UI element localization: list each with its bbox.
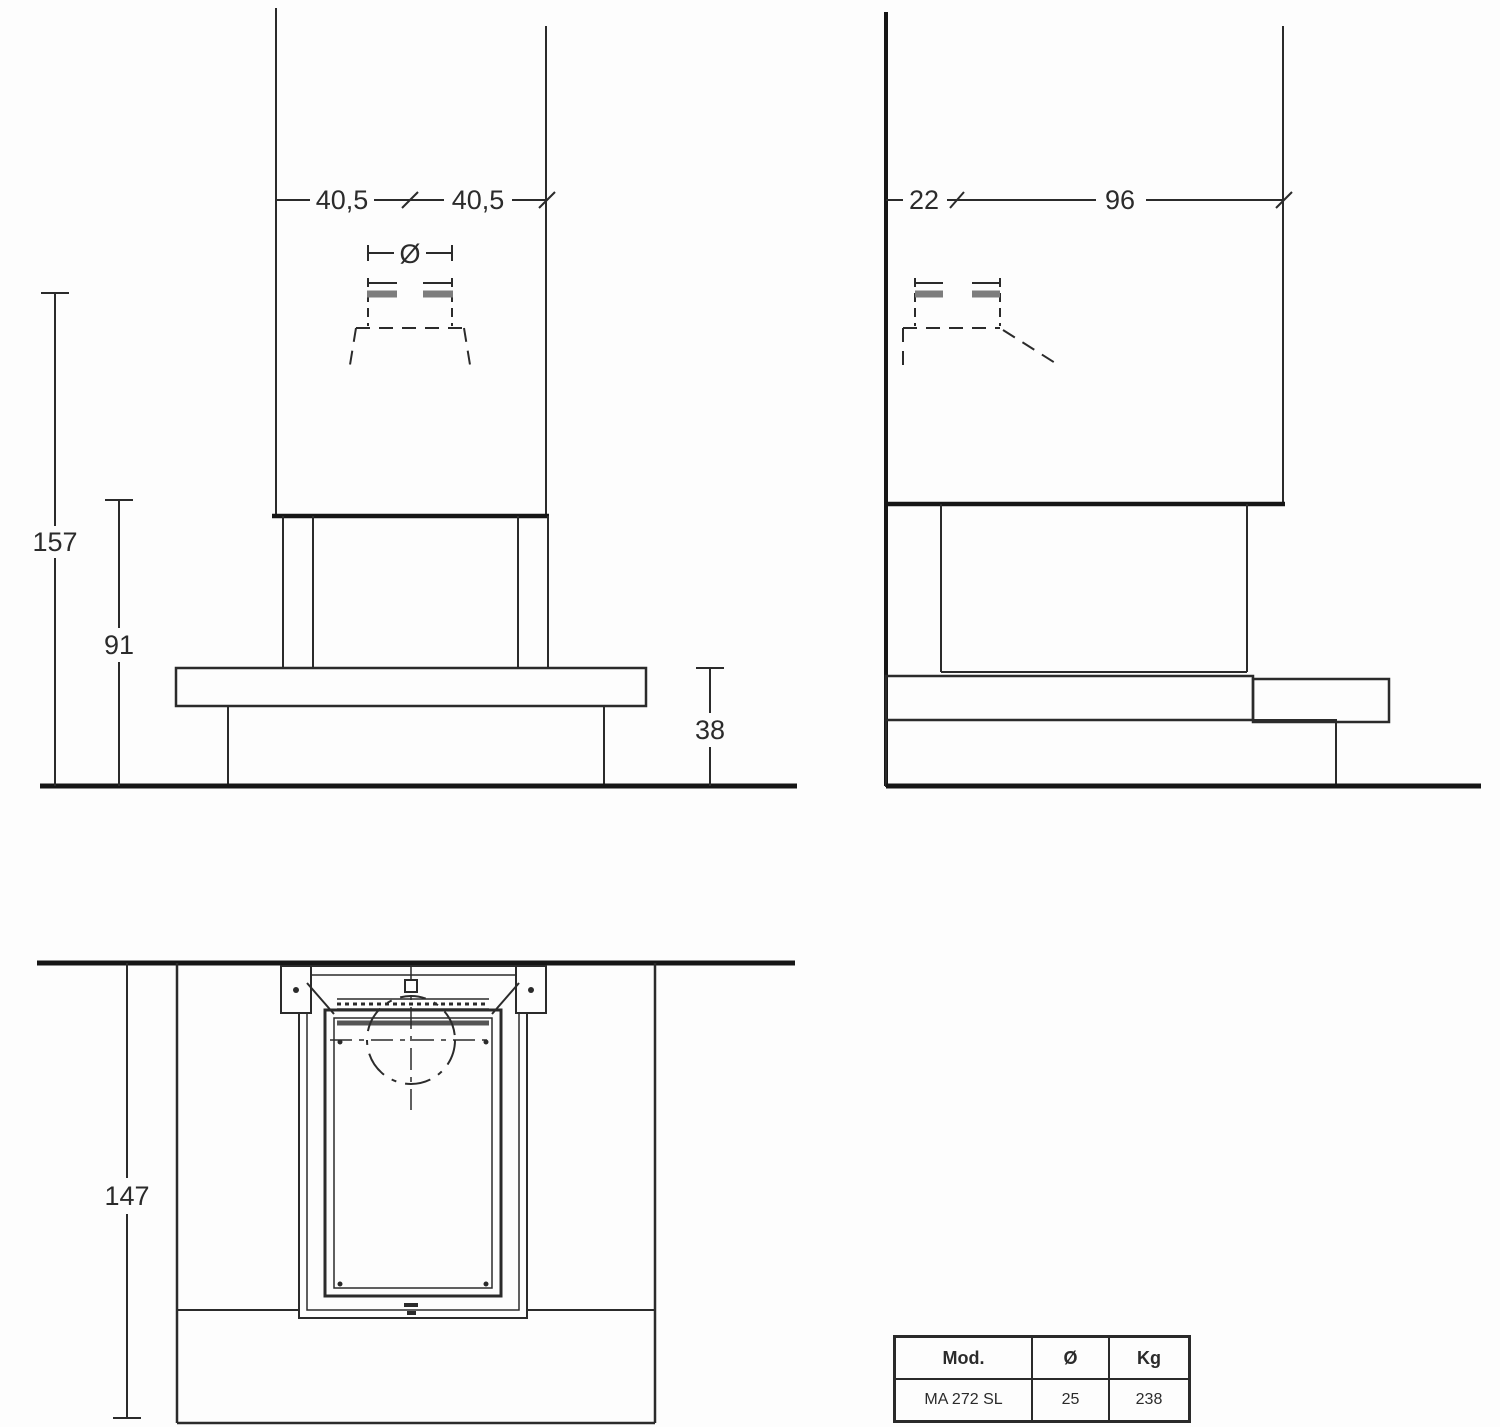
side-base-block xyxy=(886,720,1336,786)
side-view xyxy=(886,12,1481,786)
side-wall-offset-label: 22 xyxy=(909,185,939,215)
side-shelf-extension xyxy=(1253,679,1389,722)
spec-header-weight: Kg xyxy=(1109,1337,1190,1380)
side-countertop-slab xyxy=(886,676,1253,720)
side-depth-label: 96 xyxy=(1105,185,1135,215)
front-total-height-label: 157 xyxy=(32,527,77,557)
side-firebox-lines xyxy=(941,504,1247,672)
bracket-screw-left xyxy=(293,987,299,993)
plan-top-center-fitting xyxy=(405,980,417,992)
front-columns xyxy=(283,516,548,668)
side-flue-collar-dashed xyxy=(915,278,1000,326)
plan-depth-label: 147 xyxy=(104,1181,149,1211)
spec-value-weight: 238 xyxy=(1109,1379,1190,1422)
plan-bottom-center-fitting xyxy=(404,1303,418,1315)
front-flue-collar-dashed xyxy=(367,278,453,326)
spec-value-diameter: 25 xyxy=(1032,1379,1109,1422)
plan-firebox-inner-thick xyxy=(325,1010,501,1296)
side-depth-dimension xyxy=(886,192,1292,208)
bracket-screw-right xyxy=(528,987,534,993)
front-dim-label-right: 40,5 xyxy=(452,185,505,215)
spec-value-model: MA 272 SL xyxy=(895,1379,1033,1422)
spec-table-data-row: MA 272 SL 25 238 xyxy=(895,1379,1190,1422)
spec-table: Mod. Ø Kg MA 272 SL 25 238 xyxy=(893,1335,1191,1423)
front-opening-height-label: 91 xyxy=(104,630,134,660)
front-base-height-label: 38 xyxy=(695,715,725,745)
front-view xyxy=(40,8,797,786)
plan-firebox-frame-outer xyxy=(299,966,527,1318)
spec-table-header-row: Mod. Ø Kg xyxy=(895,1337,1190,1380)
technical-drawing-sheet: 40,5 40,5 Ø 157 91 38 xyxy=(0,0,1500,1427)
front-base-block xyxy=(228,706,604,786)
front-smoke-dome-dashed xyxy=(349,328,471,371)
front-countertop-slab xyxy=(176,668,646,706)
fireplace-dimension-drawing: 40,5 40,5 Ø 157 91 38 xyxy=(0,0,1500,1427)
plan-corner-screws xyxy=(338,1040,489,1287)
front-flue-diameter-label: Ø xyxy=(399,239,420,269)
front-dim-label-left: 40,5 xyxy=(316,185,369,215)
plan-firebox-inner-thin xyxy=(334,1018,492,1288)
side-smoke-dome-dashed xyxy=(903,328,1060,366)
plan-hearth-outline xyxy=(177,963,655,1423)
spec-header-model: Mod. xyxy=(895,1337,1033,1380)
plan-view xyxy=(37,963,795,1423)
spec-header-diameter: Ø xyxy=(1032,1337,1109,1380)
